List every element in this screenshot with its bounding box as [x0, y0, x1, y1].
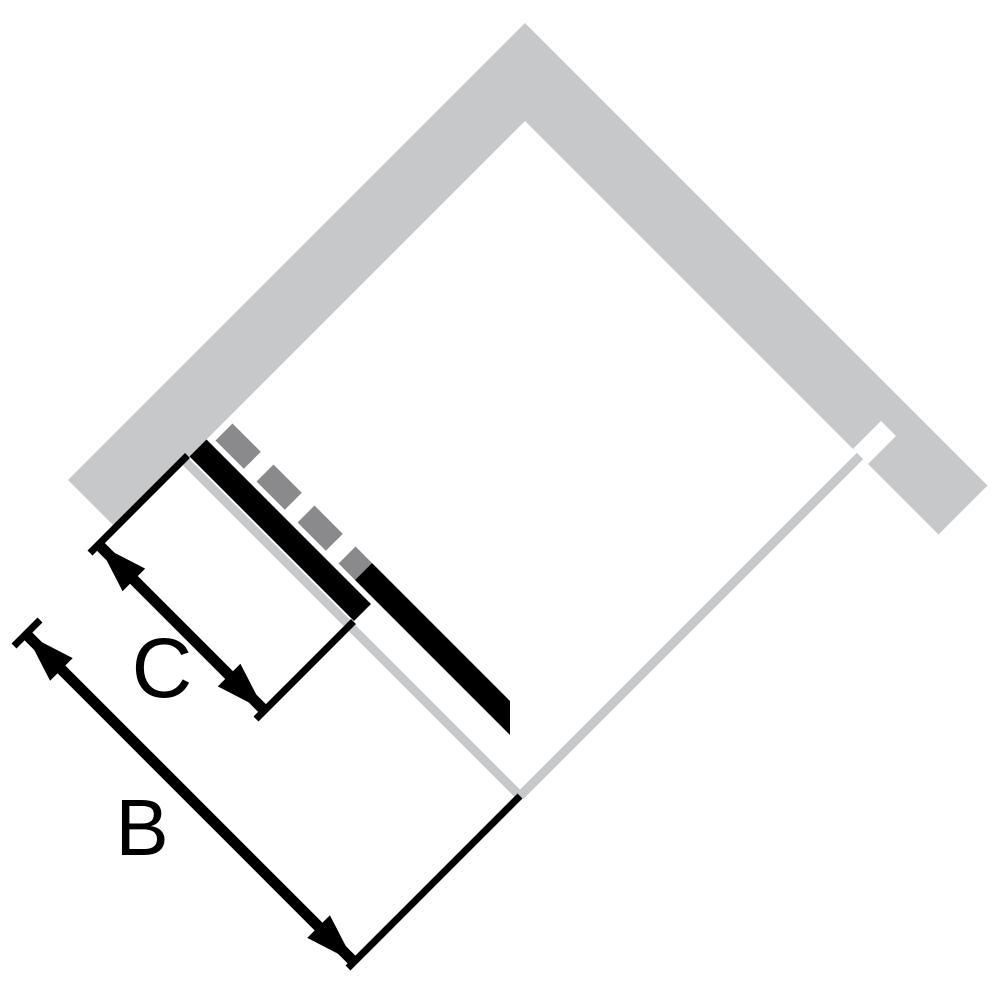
dimension-label-c: C [132, 621, 193, 715]
wall-band-left [68, 23, 525, 529]
shower-enclosure-diagram: C B [0, 0, 1000, 1000]
witness-line-c-bottom [256, 622, 354, 720]
glass-return-panel-line-right [520, 456, 860, 796]
dimension-label-b: B [115, 783, 168, 872]
glass-threshold-line-left [185, 461, 520, 796]
diagram-canvas: C B [0, 0, 1000, 1000]
dimension-c: C [99, 545, 265, 716]
wall-band-right [525, 23, 988, 535]
witness-line-b-bottom [348, 796, 520, 968]
